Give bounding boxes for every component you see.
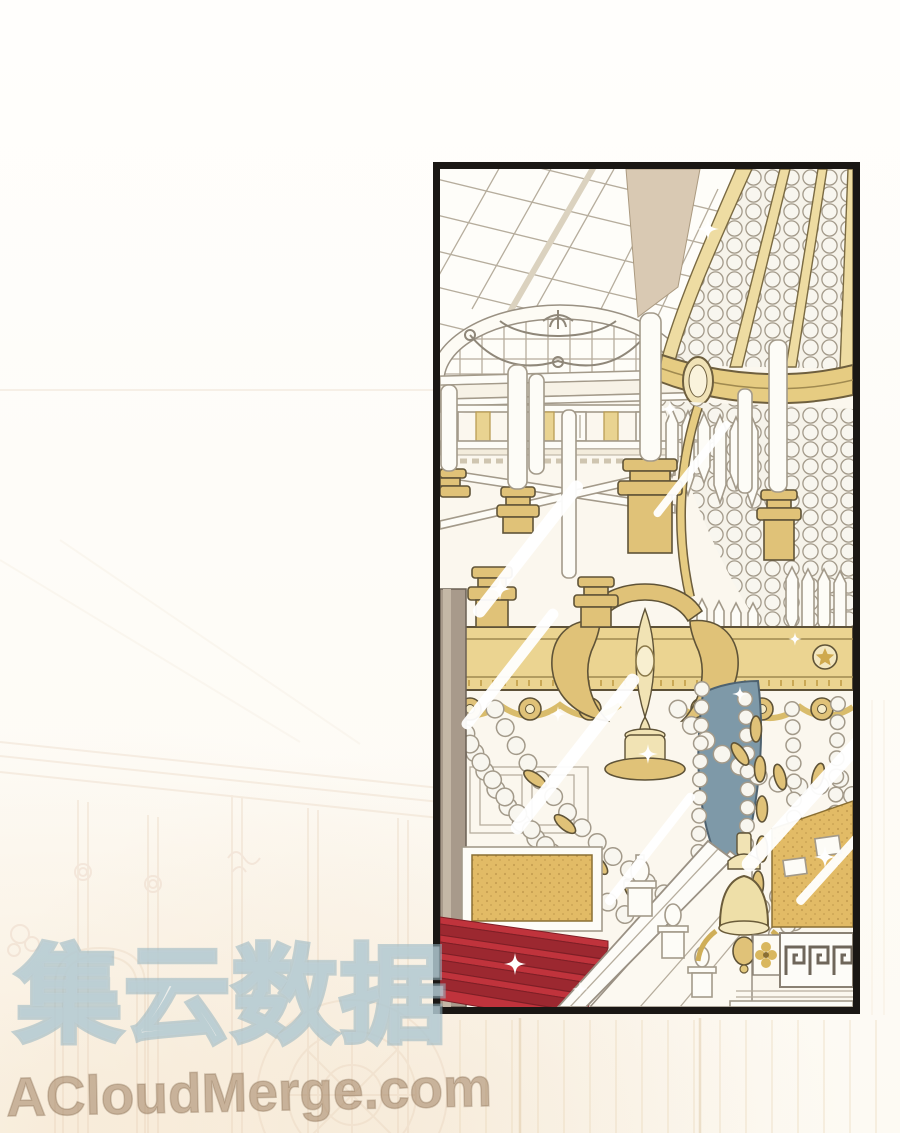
watermark-site-text: ACloudMerge.com — [5, 1055, 492, 1129]
tan-wall-panel — [462, 847, 602, 931]
floral-panel — [753, 935, 780, 975]
comic-panel — [433, 162, 860, 1014]
comic-page: 集云数据 ACloudMerge.com — [0, 0, 900, 1133]
watermark-cjk-text: 集云数据 — [16, 938, 448, 1057]
